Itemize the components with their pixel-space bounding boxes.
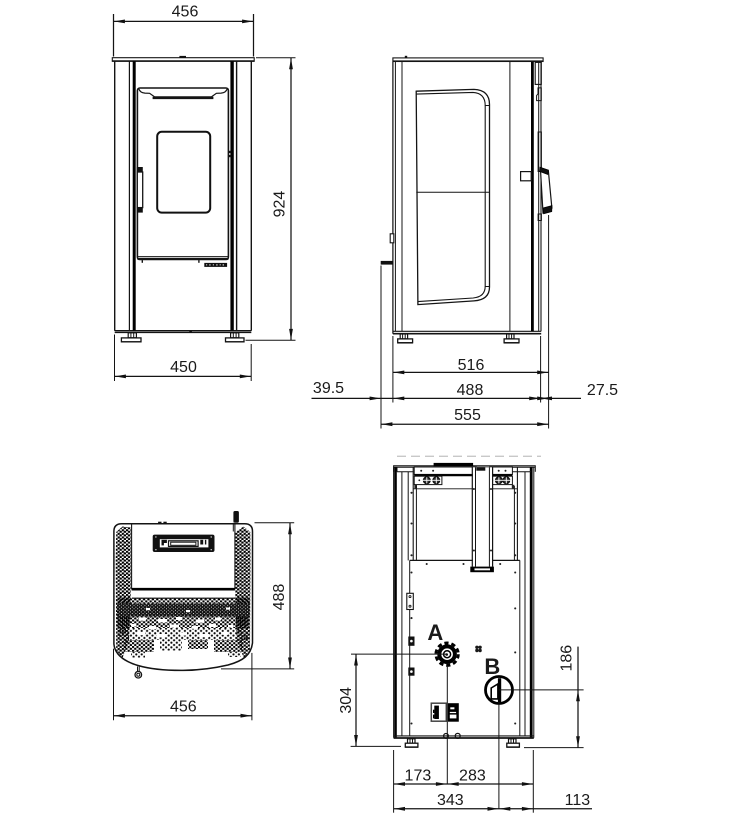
svg-text:186: 186 (559, 645, 576, 672)
svg-text:39.5: 39.5 (313, 380, 344, 397)
svg-text:555: 555 (454, 407, 481, 424)
svg-text:924: 924 (272, 191, 289, 218)
svg-text:304: 304 (338, 687, 355, 714)
svg-text:456: 456 (172, 4, 199, 21)
svg-text:516: 516 (458, 357, 485, 374)
svg-text:488: 488 (457, 382, 484, 399)
svg-text:113: 113 (565, 792, 591, 809)
svg-text:343: 343 (437, 792, 464, 809)
svg-text:27.5: 27.5 (587, 382, 618, 399)
svg-text:173: 173 (405, 767, 432, 784)
svg-text:450: 450 (170, 359, 197, 376)
svg-text:A: A (427, 620, 443, 645)
svg-text:456: 456 (170, 698, 197, 715)
svg-text:283: 283 (459, 767, 486, 784)
svg-text:488: 488 (271, 584, 288, 611)
